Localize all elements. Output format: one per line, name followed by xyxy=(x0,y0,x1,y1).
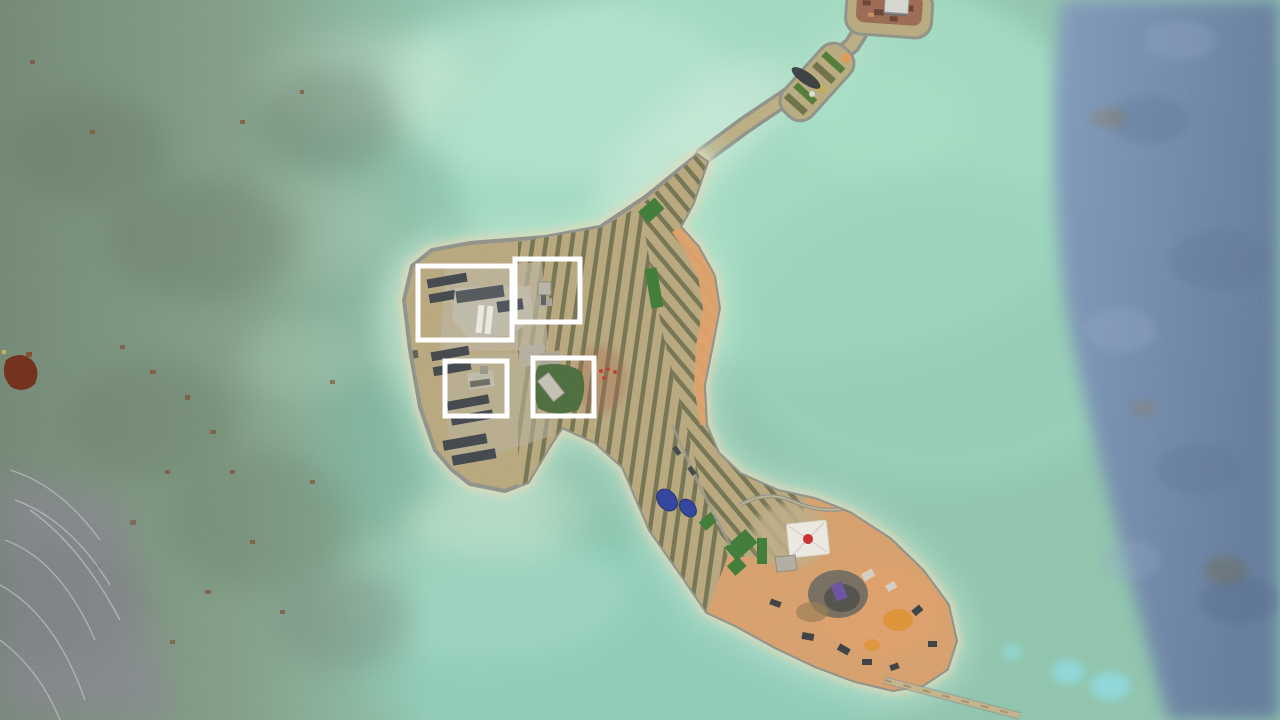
grain-texture xyxy=(0,0,1280,720)
screenshot xyxy=(0,0,1280,720)
satellite-image xyxy=(0,0,1280,720)
